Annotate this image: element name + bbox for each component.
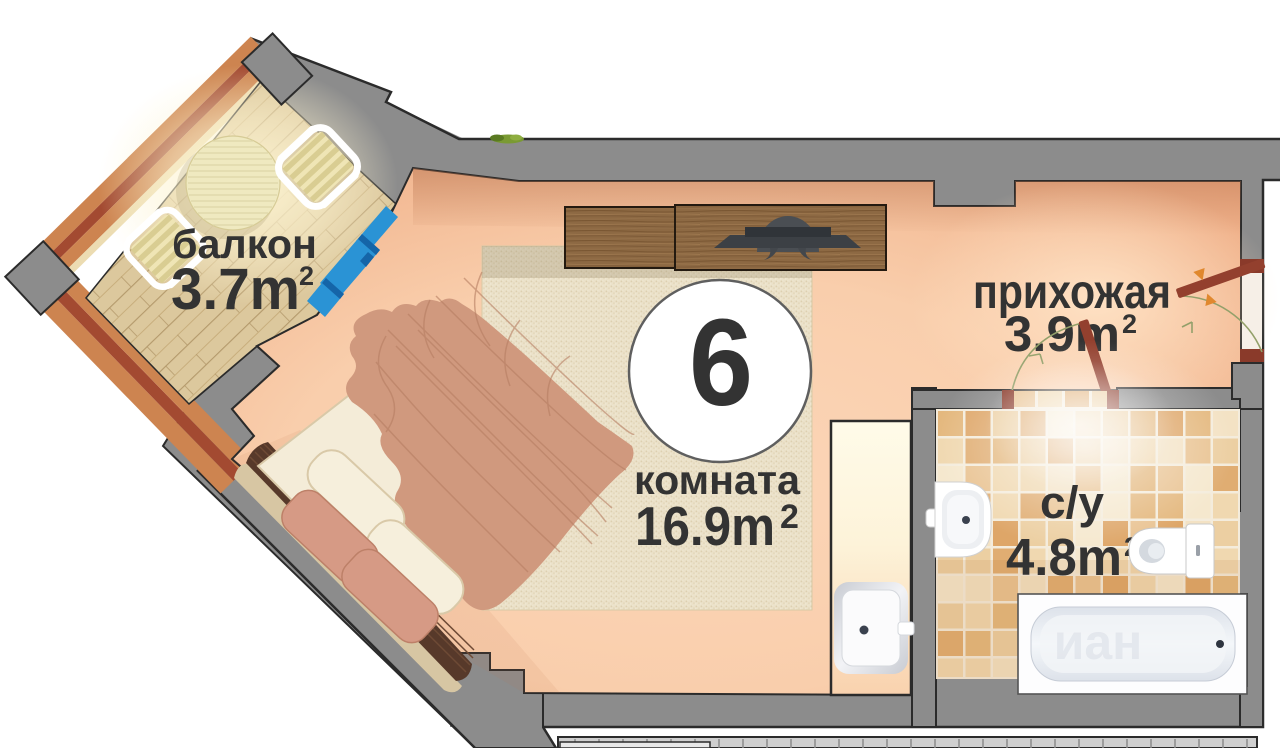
svg-text:2: 2: [1122, 309, 1137, 339]
svg-text:2: 2: [780, 498, 799, 536]
svg-text:4.8m: 4.8m: [1006, 529, 1122, 587]
svg-text:3.7m: 3.7m: [171, 257, 300, 322]
svg-text:с/у: с/у: [1040, 477, 1104, 528]
svg-text:16.9m: 16.9m: [635, 495, 775, 557]
svg-text:2: 2: [299, 261, 314, 291]
svg-text:6: 6: [689, 295, 753, 432]
svg-text:иан: иан: [1054, 614, 1143, 670]
